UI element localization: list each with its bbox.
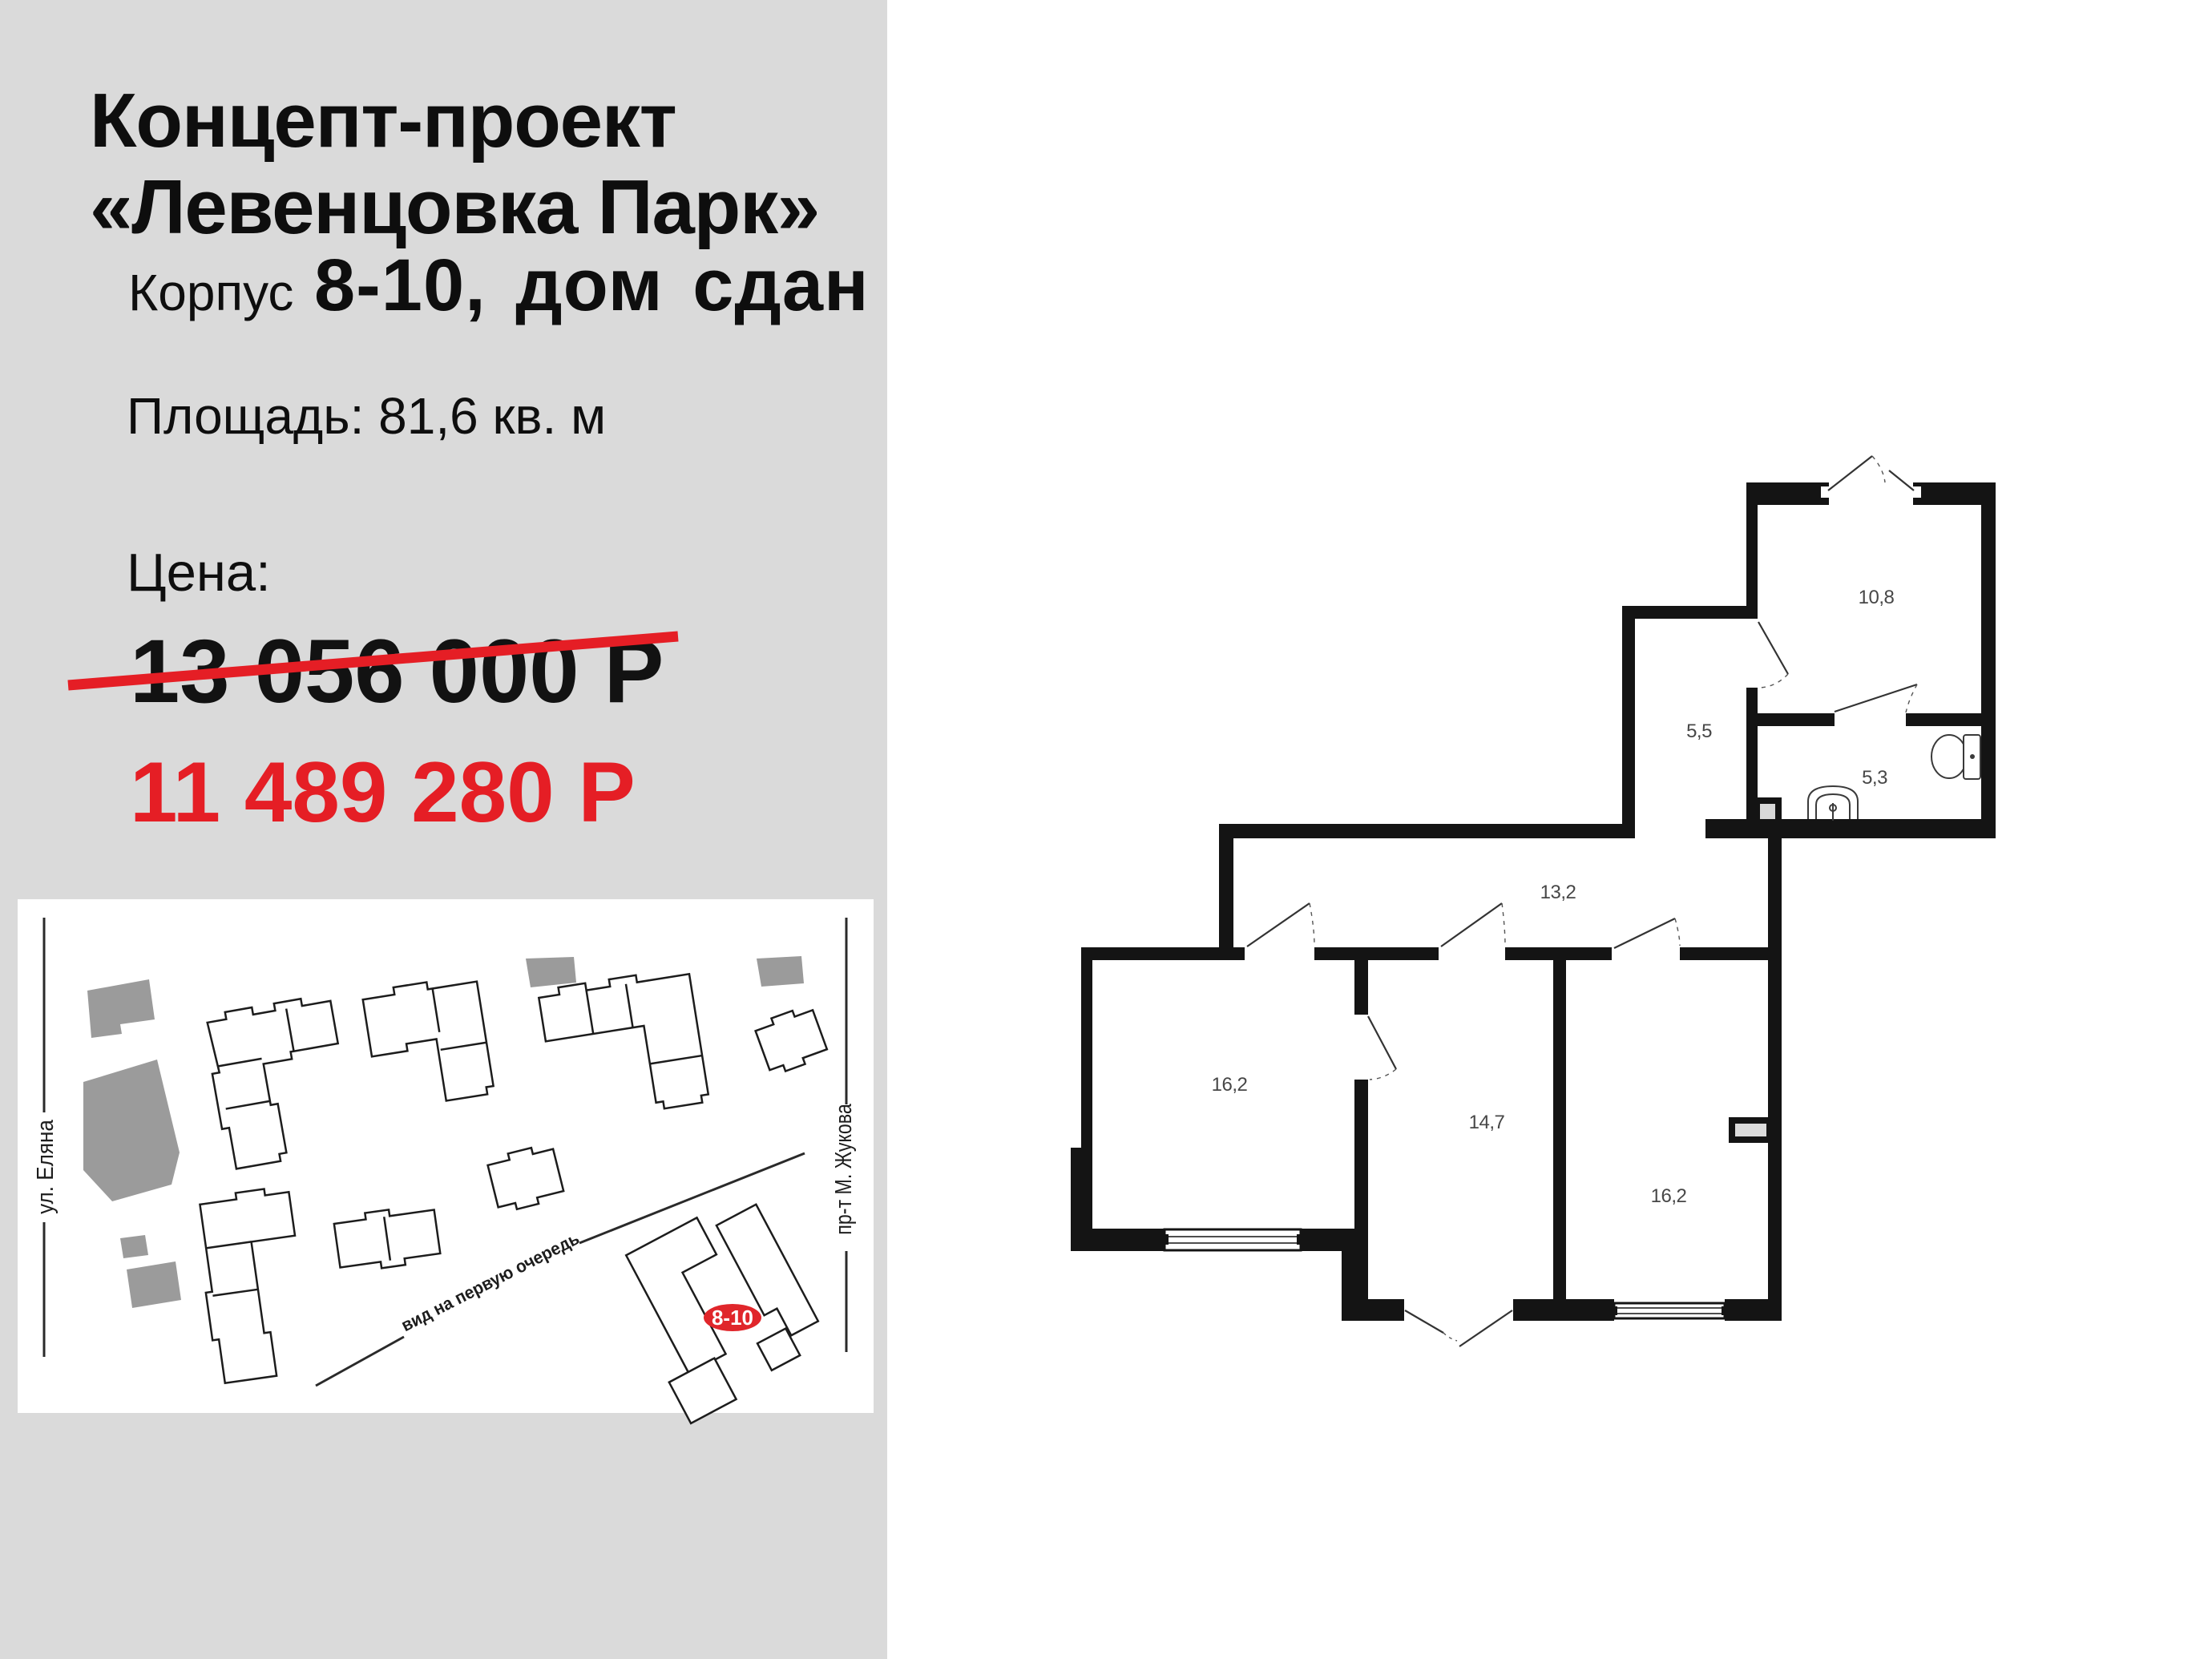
svg-text:8-10, дом сдан: 8-10, дом сдан [314, 244, 870, 326]
svg-text:14,7: 14,7 [1469, 1112, 1505, 1133]
svg-text:5,3: 5,3 [1862, 767, 1887, 789]
svg-text:Корпус: Корпус [128, 264, 293, 321]
svg-text:Концепт-проект: Концепт-проект [90, 78, 676, 163]
svg-text:11 489 280 Р: 11 489 280 Р [130, 744, 636, 840]
svg-text:8-10: 8-10 [712, 1306, 753, 1330]
svg-text:Площадь: 81,6 кв. м: Площадь: 81,6 кв. м [127, 387, 606, 445]
svg-text:13,2: 13,2 [1540, 882, 1576, 903]
svg-text:Цена:: Цена: [127, 543, 271, 603]
svg-text:10,8: 10,8 [1859, 587, 1895, 608]
svg-text:16,2: 16,2 [1651, 1185, 1687, 1207]
svg-text:пр-т М. Жукова: пр-т М. Жукова [829, 1104, 856, 1235]
svg-text:ул. Еляна: ул. Еляна [32, 1119, 59, 1213]
svg-text:5,5: 5,5 [1686, 721, 1712, 742]
svg-text:16,2: 16,2 [1212, 1074, 1248, 1096]
svg-text:«Левенцовка Парк»: «Левенцовка Парк» [90, 164, 819, 250]
